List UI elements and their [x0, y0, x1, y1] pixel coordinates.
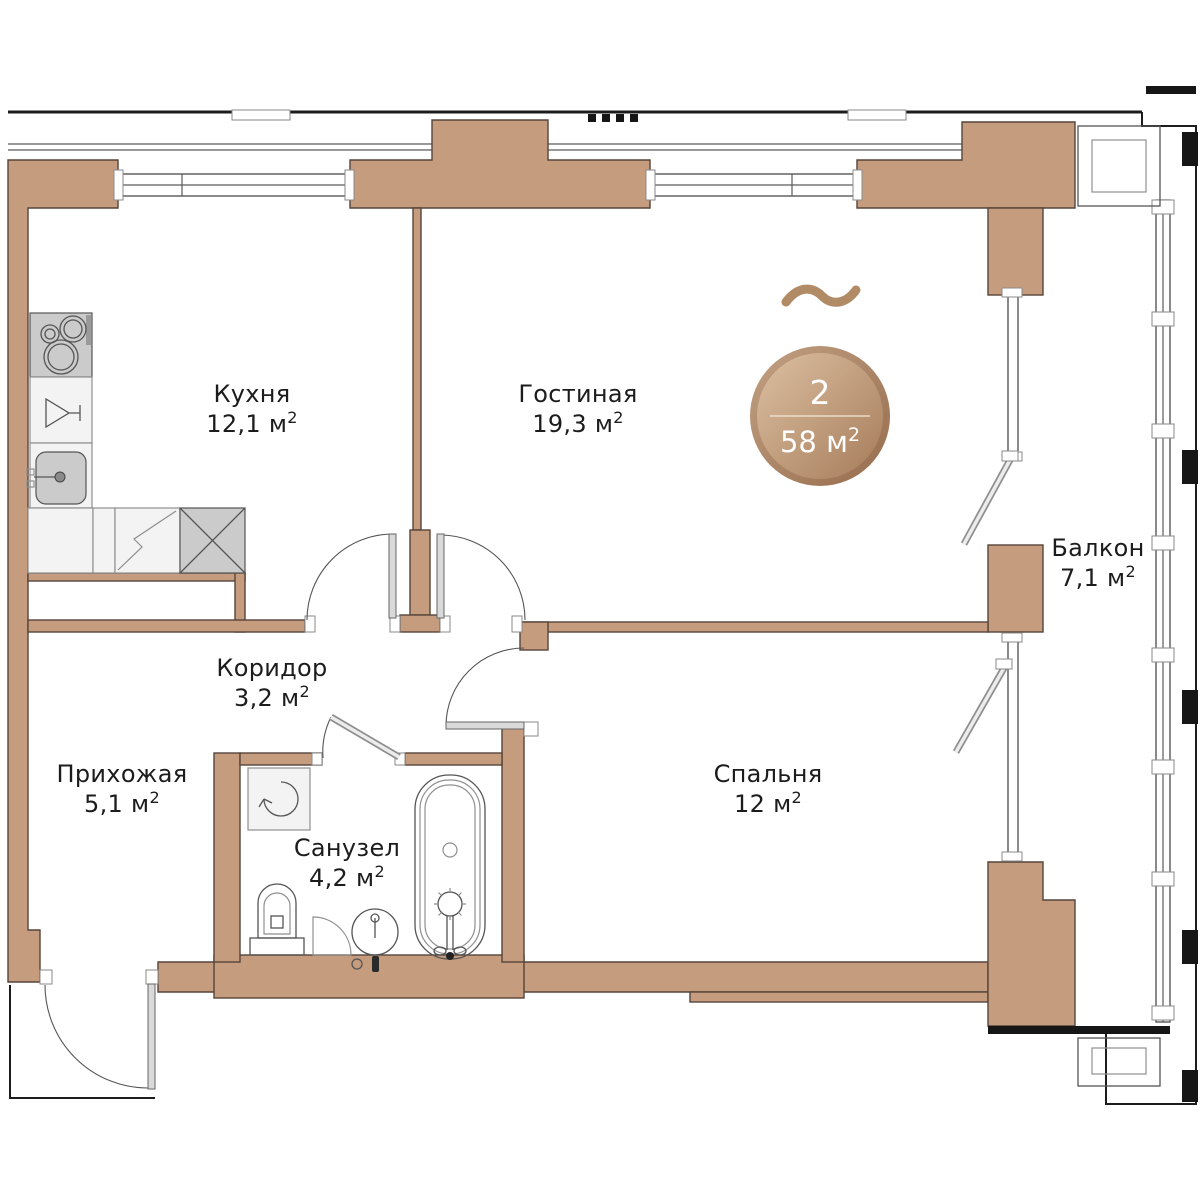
living-room-window: [646, 170, 862, 200]
stove-icon: [30, 313, 92, 377]
kitchen-living-partition: [413, 208, 421, 530]
bathtub-icon: [415, 775, 485, 960]
svg-text:19,3 м2: 19,3 м2: [532, 408, 623, 438]
kitchen-niche-top: [28, 573, 245, 581]
bedroom-door-jamb-block: [520, 622, 548, 650]
contour-notch: [848, 110, 906, 120]
area-badge: 2 58 м2: [750, 289, 890, 486]
kitchen-cabinet: [28, 508, 93, 573]
room-area: 12,1 м: [206, 410, 287, 438]
vent-tick-icon: [602, 114, 610, 122]
glass-cabinet-icon: [30, 377, 92, 443]
room-area-sup: 2: [374, 862, 384, 881]
interior-walls: [28, 208, 988, 984]
room-label-corridor: Коридор 3,2 м2: [216, 654, 327, 712]
living-room-door: [437, 534, 525, 620]
room-area-sup: 2: [613, 408, 623, 427]
room-label-balcony: Балкон 7,1 м2: [1051, 534, 1144, 592]
bath-top-wall-left: [240, 753, 322, 765]
bedroom-door: [446, 648, 524, 729]
svg-text:4,2 м2: 4,2 м2: [309, 862, 385, 892]
svg-text:Прихожая: Прихожая: [57, 760, 188, 788]
room-area-sup: 2: [149, 788, 159, 807]
svg-text:Кухня: Кухня: [213, 380, 290, 408]
bath-top-wall-right: [405, 753, 502, 765]
vent-tick-icon: [616, 114, 624, 122]
kitchen-door: [307, 534, 396, 620]
room-name: Кухня: [213, 380, 290, 408]
svg-text:Гостиная: Гостиная: [518, 380, 637, 408]
bottom-wall-step: [690, 992, 988, 1002]
floor-plan-svg: Кухня 12,1 м2 Гостиная 19,3 м2 Коридор 3…: [0, 0, 1200, 1200]
badge-rooms-count: 2: [810, 373, 831, 412]
balcony-pier-top: [988, 208, 1043, 295]
room-name: Гостиная: [518, 380, 637, 408]
balcony-door-bedroom: [956, 659, 1012, 752]
fridge-icon: [180, 508, 245, 573]
svg-text:3,2 м2: 3,2 м2: [234, 682, 310, 712]
balcony-door-living: [964, 451, 1018, 544]
balcony-glazing: [1152, 200, 1174, 1022]
right-column: [988, 862, 1075, 1026]
svg-text:Балкон: Балкон: [1051, 534, 1144, 562]
vent-tick-icon: [630, 114, 638, 122]
room-area: 5,1 м: [84, 790, 149, 818]
room-area-sup: 2: [287, 408, 297, 427]
room-label-bathroom: Санузел 4,2 м2: [294, 834, 400, 892]
room-area: 12 м: [734, 790, 791, 818]
balcony-window-living: [1002, 288, 1022, 461]
kitchen-sink-icon: [27, 443, 92, 508]
kitchen-window: [114, 170, 354, 200]
entrance-door: [45, 984, 155, 1089]
contour-notch: [232, 110, 290, 120]
room-label-kitchen: Кухня 12,1 м2: [206, 380, 297, 438]
living-bedroom-wall: [520, 622, 988, 632]
top-wall-mid: [350, 120, 650, 208]
room-area: 7,1 м: [1060, 564, 1125, 592]
svg-text:12,1 м2: 12,1 м2: [206, 408, 297, 438]
room-area-sup: 2: [792, 788, 802, 807]
room-area-sup: 2: [1125, 562, 1135, 581]
svg-text:Спальня: Спальня: [714, 760, 823, 788]
hall-bath-wall: [214, 753, 240, 962]
facade-bar: [1146, 86, 1196, 94]
dishwasher-icon: [115, 508, 180, 573]
room-name: Санузел: [294, 834, 400, 862]
svg-text:7,1 м2: 7,1 м2: [1060, 562, 1136, 592]
bathroom-door: [323, 717, 399, 758]
room-area-sup: 2: [299, 682, 309, 701]
bottom-wall-bath: [214, 955, 524, 998]
room-label-bedroom: Спальня 12 м2: [714, 760, 823, 818]
partition-base: [400, 615, 440, 632]
balcony-top-frame: [1078, 126, 1160, 206]
room-label-living: Гостиная 19,3 м2: [518, 380, 637, 438]
balcony-bottom-frame: [988, 1026, 1170, 1086]
kitchen-cabinet: [93, 508, 115, 573]
room-area: 3,2 м: [234, 684, 299, 712]
top-wall-right: [857, 122, 1075, 208]
toilet-icon: [250, 884, 304, 955]
svg-text:5,1 м2: 5,1 м2: [84, 788, 160, 818]
corner-unit-icon: [313, 917, 351, 955]
svg-text:Санузел: Санузел: [294, 834, 400, 862]
room-label-hallway: Прихожая 5,1 м2: [57, 760, 188, 818]
room-name: Балкон: [1051, 534, 1144, 562]
kitchen-hall-wall: [28, 620, 305, 632]
squiggle-icon: [786, 289, 856, 302]
kitchen-living-partition-stub: [410, 530, 430, 615]
washing-machine-icon: [248, 768, 310, 830]
room-name: Спальня: [714, 760, 823, 788]
bath-bedroom-wall: [502, 728, 524, 962]
room-name: Прихожая: [57, 760, 188, 788]
floor-plan-page: Кухня 12,1 м2 Гостиная 19,3 м2 Коридор 3…: [0, 0, 1200, 1200]
balcony-pier-mid: [988, 545, 1043, 632]
vent-tick-icon: [588, 114, 596, 122]
svg-text:12 м2: 12 м2: [734, 788, 802, 818]
room-area: 4,2 м: [309, 864, 374, 892]
svg-text:Коридор: Коридор: [216, 654, 327, 682]
room-area: 19,3 м: [532, 410, 613, 438]
room-name: Коридор: [216, 654, 327, 682]
kitchen-fixtures: [27, 313, 245, 573]
